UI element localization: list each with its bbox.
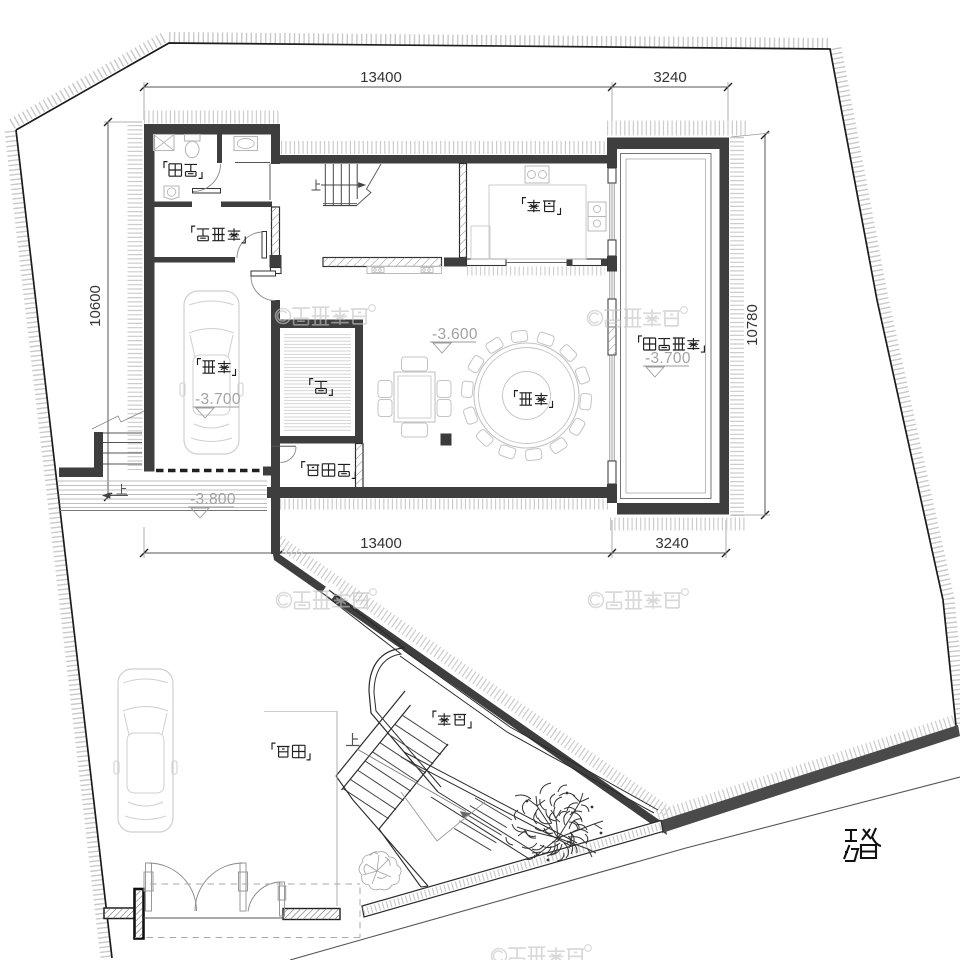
svg-text:10780: 10780 bbox=[744, 304, 761, 346]
svg-text:-3.800: -3.800 bbox=[190, 491, 236, 508]
svg-text:-3.700: -3.700 bbox=[645, 350, 691, 367]
svg-text:13400: 13400 bbox=[360, 535, 402, 552]
svg-text:-3.700: -3.700 bbox=[195, 391, 241, 408]
svg-text:-3.600: -3.600 bbox=[432, 326, 478, 343]
svg-text:3240: 3240 bbox=[653, 69, 686, 86]
svg-text:13400: 13400 bbox=[360, 69, 402, 86]
svg-text:3240: 3240 bbox=[655, 535, 688, 552]
svg-text:10600: 10600 bbox=[87, 285, 104, 327]
